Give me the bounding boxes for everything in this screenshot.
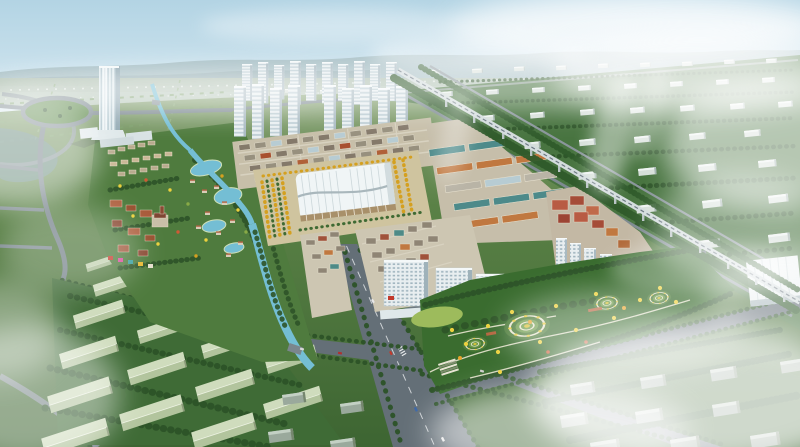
cloud [200,8,480,44]
rendering-canvas: Bird's-eye rendering of a planned city d… [0,0,800,447]
fog-patch [610,240,790,296]
fog-patch [0,205,140,295]
aerial-city-rendering: Bird's-eye rendering of a planned city d… [0,0,800,447]
